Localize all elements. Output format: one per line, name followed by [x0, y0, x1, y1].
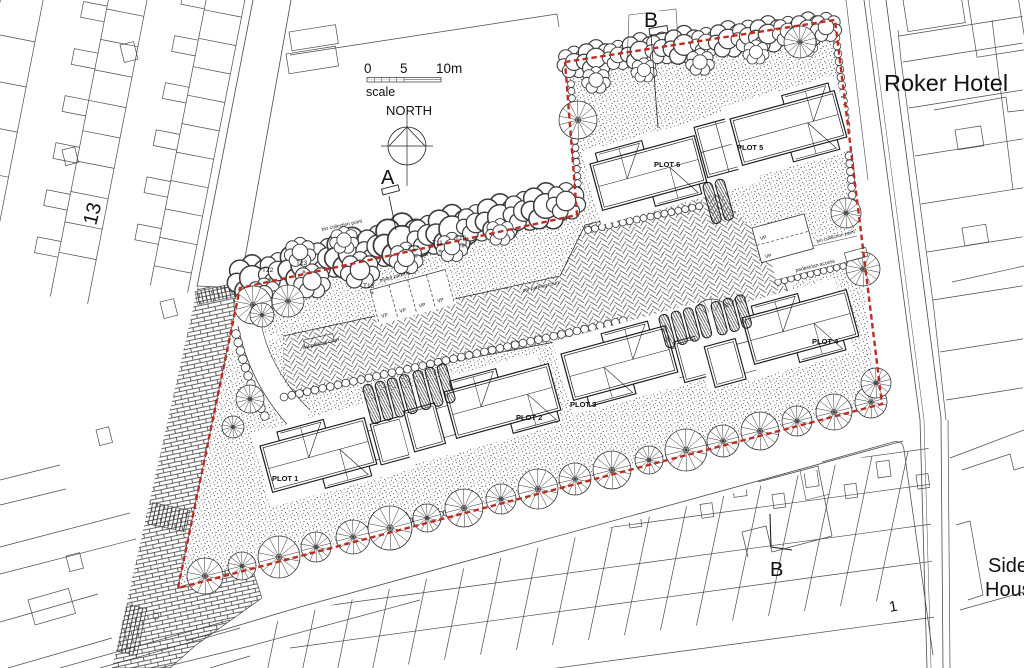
svg-text:T10: T10: [455, 235, 467, 242]
svg-text:B: B: [770, 559, 783, 581]
svg-text:T12: T12: [408, 245, 420, 252]
svg-text:T11: T11: [432, 240, 443, 247]
svg-text:5: 5: [400, 61, 408, 76]
svg-text:0: 0: [364, 61, 372, 76]
svg-text:10m: 10m: [436, 61, 462, 76]
svg-text:PLOT 5: PLOT 5: [737, 143, 763, 152]
svg-text:PLOT 1: PLOT 1: [272, 474, 298, 483]
svg-text:scale: scale: [366, 85, 395, 99]
svg-text:House: House: [985, 579, 1024, 601]
svg-text:T22: T22: [262, 267, 274, 274]
svg-text:NORTH: NORTH: [386, 103, 432, 118]
svg-text:T13: T13: [363, 283, 375, 290]
svg-text:Roker Hotel: Roker Hotel: [884, 70, 1008, 96]
svg-text:PLOT 3: PLOT 3: [570, 400, 596, 409]
svg-text:PLOT 6: PLOT 6: [654, 160, 680, 169]
svg-text:T23: T23: [296, 260, 308, 267]
svg-text:Side: Side: [988, 555, 1024, 577]
svg-text:PLOT 2: PLOT 2: [516, 413, 542, 422]
svg-text:PLOT 4: PLOT 4: [812, 337, 839, 346]
